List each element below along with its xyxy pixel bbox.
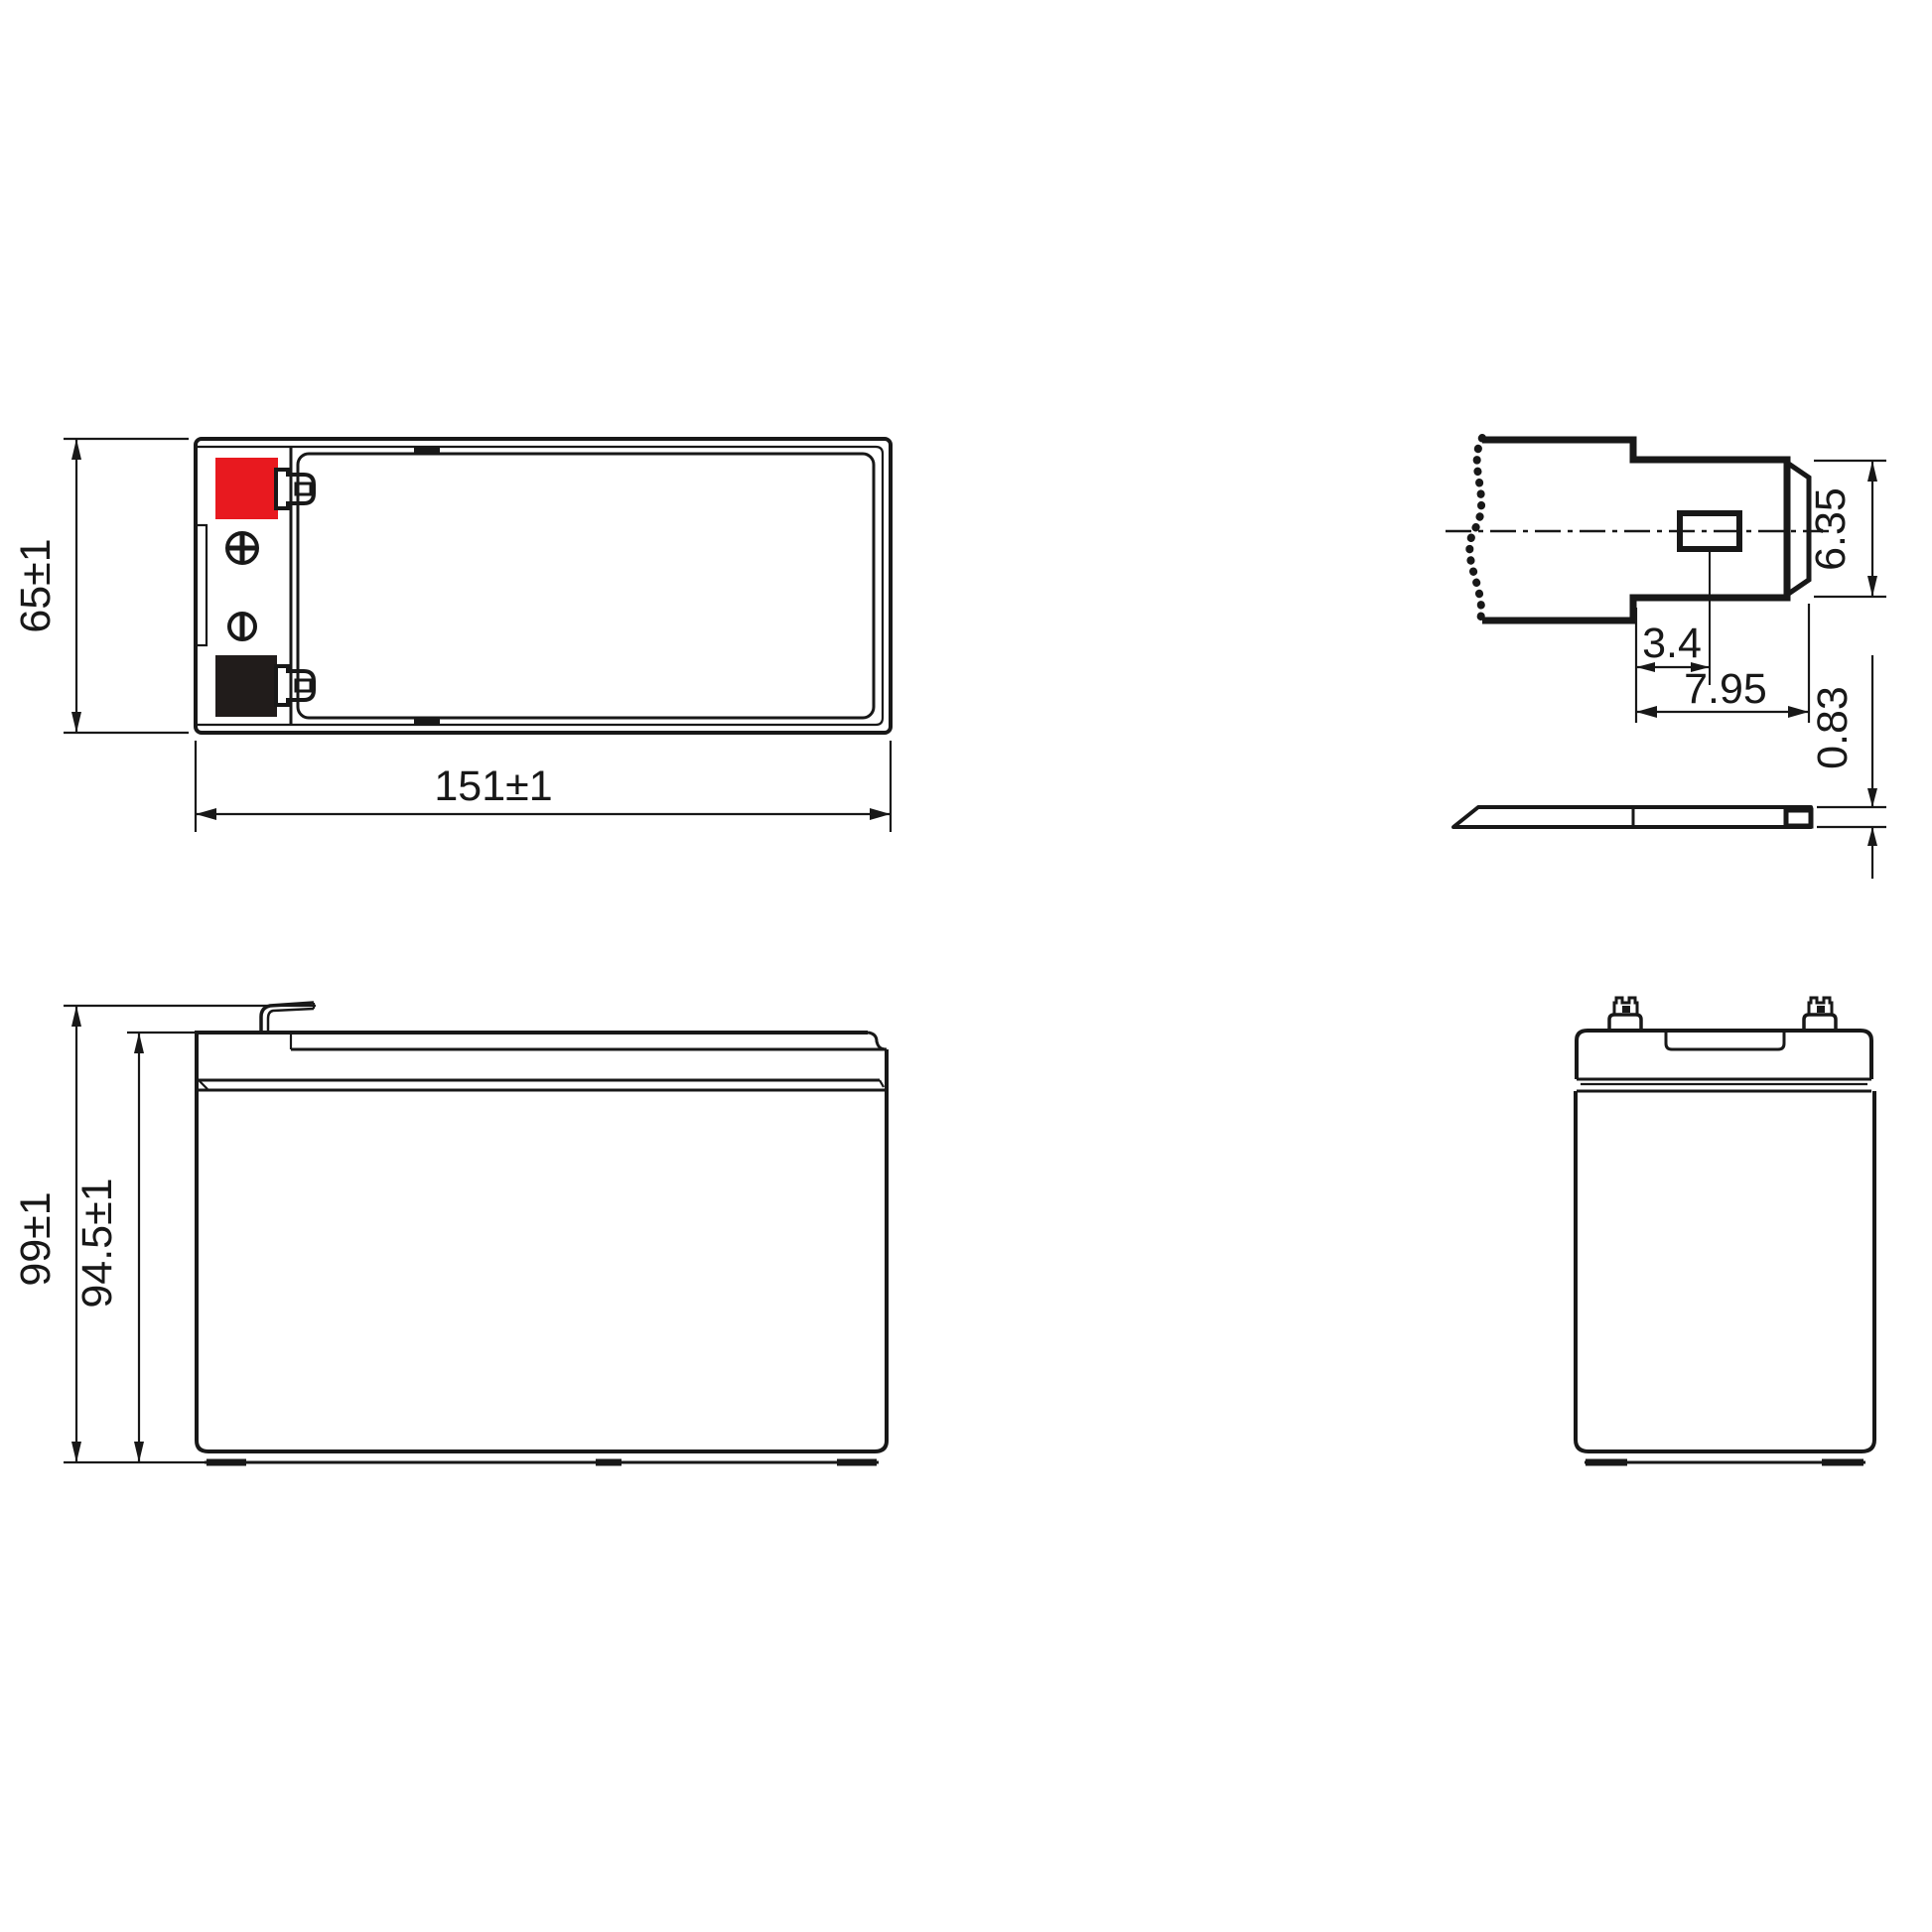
positive-terminal — [215, 458, 278, 519]
drawing-background — [0, 0, 1932, 1932]
drawing-canvas: 65±1 151±1 6.35 — [0, 0, 1932, 1932]
dim-label-6-35: 6.35 — [1807, 487, 1855, 571]
dim-label-99: 99±1 — [12, 1191, 60, 1286]
dim-label-65: 65±1 — [12, 538, 60, 632]
tab-edge-hole — [1786, 810, 1811, 826]
negative-terminal — [215, 655, 277, 717]
dim-label-151: 151±1 — [434, 762, 552, 810]
dim-label-94-5: 94.5±1 — [73, 1177, 121, 1308]
dim-label-0-83: 0.83 — [1809, 686, 1857, 769]
battery-dimensional-drawing: 65±1 151±1 6.35 — [0, 0, 1932, 1932]
dim-label-3-4: 3.4 — [1642, 620, 1702, 667]
phillips-screw-icon — [227, 533, 257, 563]
dim-label-7-95: 7.95 — [1684, 665, 1767, 713]
